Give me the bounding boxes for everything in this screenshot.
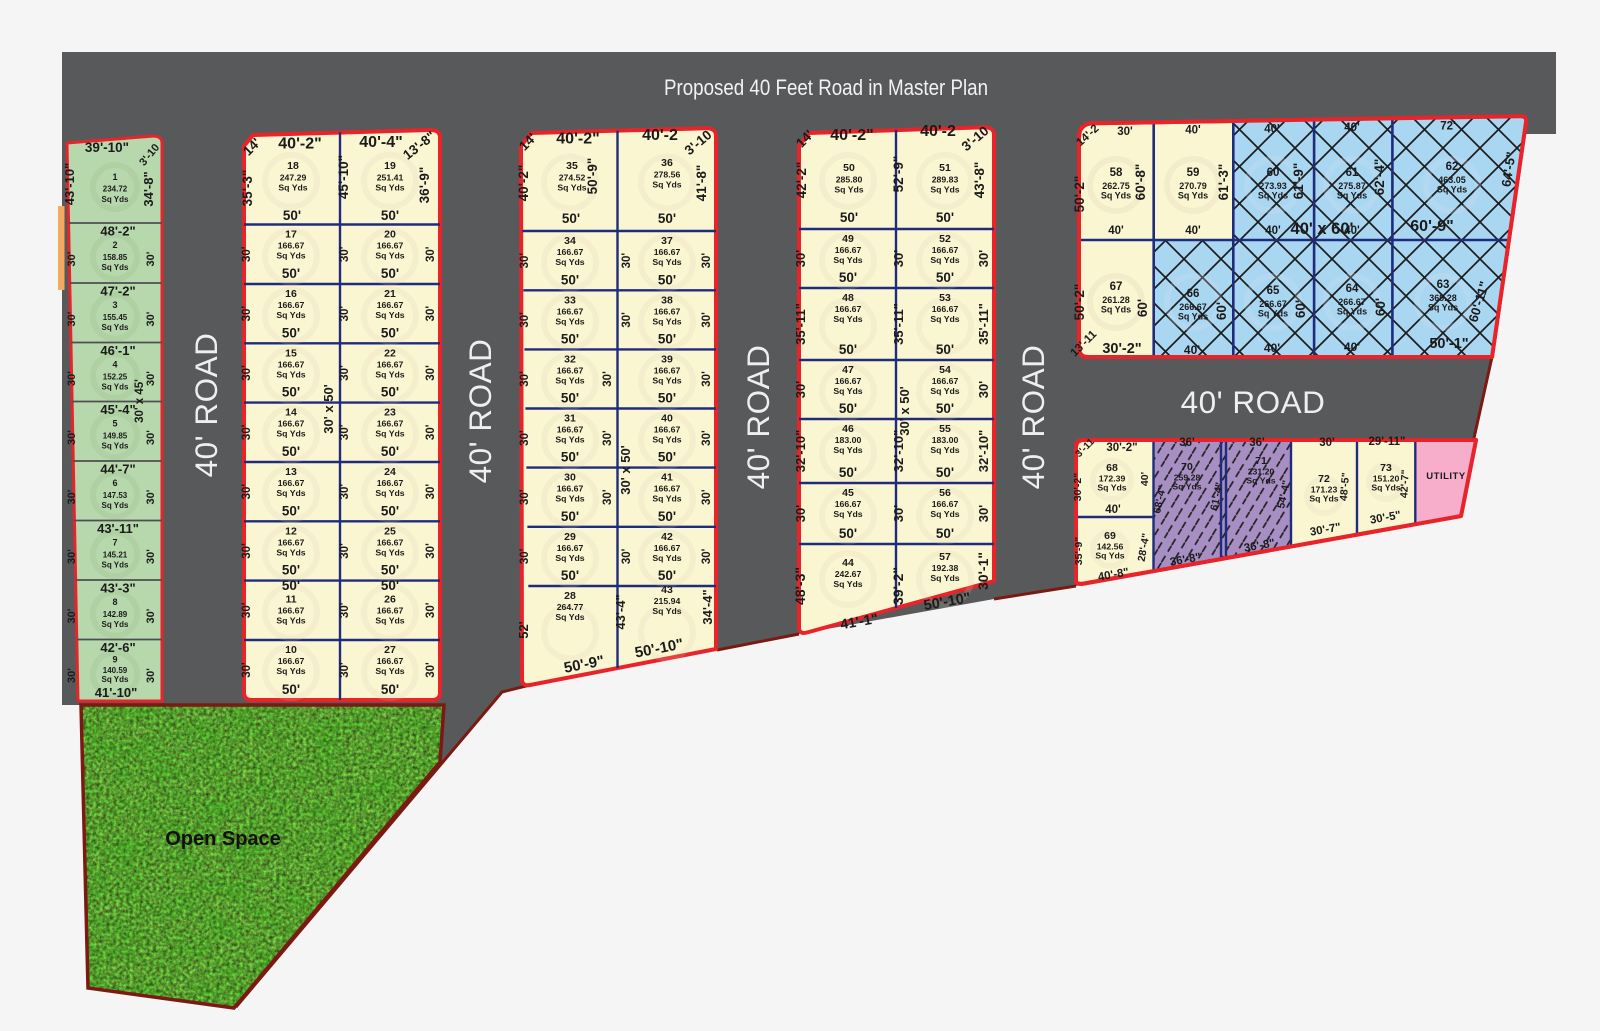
svg-text:32'-10": 32'-10" bbox=[793, 430, 808, 473]
svg-text:Open Space: Open Space bbox=[165, 828, 281, 850]
svg-text:Sq Yds: Sq Yds bbox=[652, 316, 681, 326]
svg-text:32: 32 bbox=[564, 353, 576, 365]
svg-text:40': 40' bbox=[1108, 225, 1124, 237]
svg-text:Sq Yds: Sq Yds bbox=[375, 429, 404, 439]
svg-text:30': 30' bbox=[241, 306, 253, 322]
svg-text:Sq Yds: Sq Yds bbox=[652, 375, 681, 385]
svg-text:30': 30' bbox=[701, 253, 713, 269]
svg-text:30': 30' bbox=[425, 365, 437, 381]
svg-text:40': 40' bbox=[1344, 122, 1360, 134]
svg-text:Sq Yds: Sq Yds bbox=[1428, 303, 1458, 313]
svg-text:166.67: 166.67 bbox=[278, 606, 305, 616]
svg-text:50': 50' bbox=[839, 342, 857, 357]
svg-text:166.67: 166.67 bbox=[654, 543, 681, 553]
svg-text:50': 50' bbox=[561, 331, 579, 346]
svg-text:Sq Yds: Sq Yds bbox=[276, 310, 305, 320]
svg-text:41: 41 bbox=[661, 472, 673, 484]
svg-text:40'-2": 40'-2" bbox=[830, 127, 873, 144]
svg-text:30': 30' bbox=[425, 662, 437, 678]
svg-text:Sq Yds: Sq Yds bbox=[930, 386, 959, 396]
svg-text:50': 50' bbox=[561, 509, 579, 524]
svg-text:30: 30 bbox=[564, 472, 576, 484]
svg-text:30': 30' bbox=[621, 312, 633, 328]
svg-text:50': 50' bbox=[381, 385, 399, 400]
svg-text:50': 50' bbox=[840, 210, 858, 225]
svg-text:166.67: 166.67 bbox=[932, 499, 959, 509]
svg-text:166.67: 166.67 bbox=[278, 300, 305, 310]
svg-text:30': 30' bbox=[602, 430, 614, 446]
svg-text:70: 70 bbox=[1181, 461, 1193, 473]
svg-text:40'-2": 40'-2" bbox=[556, 131, 599, 148]
svg-text:30': 30' bbox=[891, 250, 906, 268]
svg-text:1: 1 bbox=[112, 172, 117, 182]
svg-text:42'-2": 42'-2" bbox=[794, 162, 809, 199]
svg-text:Sq Yds: Sq Yds bbox=[930, 509, 959, 519]
svg-text:Sq Yds: Sq Yds bbox=[276, 616, 305, 626]
svg-text:152.25: 152.25 bbox=[103, 373, 128, 382]
svg-text:46: 46 bbox=[842, 423, 854, 435]
svg-text:20: 20 bbox=[384, 229, 396, 241]
svg-text:166.67: 166.67 bbox=[377, 656, 404, 666]
svg-text:Sq Yds: Sq Yds bbox=[930, 314, 959, 324]
svg-text:50': 50' bbox=[282, 578, 300, 593]
svg-text:3: 3 bbox=[112, 300, 117, 310]
svg-text:72: 72 bbox=[1318, 473, 1330, 485]
svg-text:30': 30' bbox=[793, 505, 808, 523]
svg-text:37: 37 bbox=[661, 235, 673, 247]
svg-text:19: 19 bbox=[384, 160, 396, 172]
svg-text:Sq Yds: Sq Yds bbox=[1097, 483, 1126, 493]
svg-text:166.67: 166.67 bbox=[278, 656, 305, 666]
svg-text:14: 14 bbox=[285, 407, 297, 419]
svg-text:140.59: 140.59 bbox=[103, 666, 128, 675]
svg-text:30': 30' bbox=[976, 505, 991, 523]
svg-text:Sq Yds: Sq Yds bbox=[930, 573, 959, 583]
svg-text:50': 50' bbox=[839, 270, 857, 285]
svg-text:Sq Yds: Sq Yds bbox=[1258, 309, 1288, 319]
svg-text:44'-7": 44'-7" bbox=[100, 462, 135, 477]
svg-text:40': 40' bbox=[1264, 341, 1280, 355]
svg-text:Sq Yds: Sq Yds bbox=[1172, 482, 1201, 492]
svg-text:Sq Yds: Sq Yds bbox=[102, 442, 130, 451]
svg-text:266.67: 266.67 bbox=[1179, 302, 1207, 312]
svg-text:30': 30' bbox=[339, 602, 351, 618]
svg-text:30': 30' bbox=[701, 371, 713, 387]
svg-text:28: 28 bbox=[564, 590, 576, 602]
svg-text:30': 30' bbox=[145, 371, 157, 386]
svg-text:42'-6": 42'-6" bbox=[100, 640, 135, 655]
svg-text:166.67: 166.67 bbox=[557, 425, 584, 435]
svg-text:Sq Yds: Sq Yds bbox=[557, 183, 586, 193]
svg-text:289.83: 289.83 bbox=[932, 175, 959, 185]
svg-text:8: 8 bbox=[112, 597, 117, 607]
svg-text:41'-8": 41'-8" bbox=[694, 165, 709, 202]
svg-text:30': 30' bbox=[339, 365, 351, 381]
svg-text:42'-7": 42'-7" bbox=[1398, 469, 1411, 498]
svg-text:166.67: 166.67 bbox=[278, 537, 305, 547]
svg-text:30': 30' bbox=[145, 430, 157, 445]
svg-text:50': 50' bbox=[381, 682, 399, 697]
svg-text:60': 60' bbox=[1214, 302, 1229, 320]
svg-text:30': 30' bbox=[241, 602, 253, 618]
svg-text:30': 30' bbox=[339, 484, 351, 500]
svg-text:43'-11": 43'-11" bbox=[97, 521, 139, 536]
svg-text:50': 50' bbox=[936, 270, 954, 285]
svg-text:30' x 50': 30' x 50' bbox=[321, 384, 336, 434]
svg-text:43: 43 bbox=[661, 584, 673, 596]
svg-text:Sq Yds: Sq Yds bbox=[833, 509, 862, 519]
svg-text:Sq Yds: Sq Yds bbox=[276, 251, 305, 261]
svg-text:Sq Yds: Sq Yds bbox=[102, 383, 130, 392]
svg-text:40' ROAD: 40' ROAD bbox=[740, 345, 776, 490]
svg-text:Sq Yds: Sq Yds bbox=[102, 263, 130, 272]
svg-text:40' ROAD: 40' ROAD bbox=[1181, 384, 1326, 420]
svg-text:40': 40' bbox=[1265, 225, 1281, 237]
svg-text:166.67: 166.67 bbox=[377, 419, 404, 429]
svg-text:13: 13 bbox=[285, 466, 297, 478]
svg-text:52': 52' bbox=[516, 621, 531, 639]
svg-text:50': 50' bbox=[562, 211, 580, 226]
svg-text:30': 30' bbox=[701, 430, 713, 446]
svg-text:145.21: 145.21 bbox=[103, 551, 128, 560]
svg-text:Sq Yds: Sq Yds bbox=[555, 612, 584, 622]
svg-text:43'-8": 43'-8" bbox=[972, 162, 987, 199]
svg-text:50': 50' bbox=[936, 465, 954, 480]
svg-text:166.67: 166.67 bbox=[377, 359, 404, 369]
svg-text:Sq Yds: Sq Yds bbox=[930, 255, 959, 265]
svg-text:30': 30' bbox=[701, 548, 713, 564]
svg-text:166.67: 166.67 bbox=[654, 365, 681, 375]
svg-text:7: 7 bbox=[112, 538, 117, 548]
svg-text:Sq Yds: Sq Yds bbox=[278, 183, 307, 193]
svg-text:30': 30' bbox=[241, 543, 253, 559]
svg-text:45'-4": 45'-4" bbox=[100, 402, 135, 417]
svg-text:50': 50' bbox=[381, 208, 399, 223]
svg-text:30': 30' bbox=[66, 311, 78, 326]
svg-text:Sq Yds: Sq Yds bbox=[1101, 191, 1131, 201]
svg-text:50': 50' bbox=[561, 272, 579, 287]
svg-text:27: 27 bbox=[384, 644, 396, 656]
svg-text:50': 50' bbox=[282, 325, 300, 340]
svg-text:50': 50' bbox=[936, 342, 954, 357]
svg-text:Sq Yds: Sq Yds bbox=[1101, 305, 1131, 315]
svg-text:30': 30' bbox=[519, 371, 531, 387]
svg-text:64: 64 bbox=[1346, 283, 1359, 295]
svg-text:Sq Yds: Sq Yds bbox=[834, 185, 863, 195]
svg-text:192.38: 192.38 bbox=[932, 563, 959, 573]
svg-text:43'-4": 43'-4" bbox=[613, 594, 628, 629]
svg-text:Sq Yds: Sq Yds bbox=[1337, 191, 1367, 201]
svg-text:Sq Yds: Sq Yds bbox=[276, 547, 305, 557]
svg-text:50': 50' bbox=[839, 526, 857, 541]
svg-text:73: 73 bbox=[1380, 462, 1392, 474]
svg-text:66: 66 bbox=[1187, 288, 1200, 300]
svg-text:Sq Yds: Sq Yds bbox=[276, 369, 305, 379]
svg-text:30': 30' bbox=[241, 365, 253, 381]
svg-text:30': 30' bbox=[425, 543, 437, 559]
svg-text:35'-11": 35'-11" bbox=[976, 303, 991, 345]
svg-text:67: 67 bbox=[1110, 281, 1123, 293]
svg-text:Sq Yds: Sq Yds bbox=[555, 553, 584, 563]
svg-text:30' x 50': 30' x 50' bbox=[618, 445, 633, 495]
svg-text:59: 59 bbox=[1187, 167, 1200, 179]
svg-text:40' x 60': 40' x 60' bbox=[1291, 220, 1354, 238]
svg-text:50': 50' bbox=[282, 563, 300, 578]
svg-text:50'-1": 50'-1" bbox=[1429, 336, 1468, 352]
svg-text:Sq Yds: Sq Yds bbox=[833, 445, 862, 455]
svg-text:40: 40 bbox=[661, 413, 673, 425]
svg-text:166.67: 166.67 bbox=[835, 376, 862, 386]
svg-text:166.67: 166.67 bbox=[932, 245, 959, 255]
svg-text:30': 30' bbox=[519, 253, 531, 269]
svg-text:463.05: 463.05 bbox=[1438, 175, 1466, 185]
svg-text:30': 30' bbox=[339, 246, 351, 262]
svg-text:30': 30' bbox=[519, 430, 531, 446]
svg-text:262.75: 262.75 bbox=[1102, 181, 1130, 191]
svg-text:10: 10 bbox=[285, 644, 297, 656]
svg-text:34'-8": 34'-8" bbox=[141, 171, 156, 206]
svg-text:30': 30' bbox=[145, 311, 157, 326]
svg-text:166.67: 166.67 bbox=[278, 359, 305, 369]
svg-text:40': 40' bbox=[1264, 123, 1280, 135]
svg-text:Sq Yds: Sq Yds bbox=[375, 310, 404, 320]
svg-text:40' ROAD: 40' ROAD bbox=[1015, 345, 1051, 490]
svg-text:Sq Yds: Sq Yds bbox=[375, 616, 404, 626]
svg-text:68: 68 bbox=[1106, 462, 1118, 474]
svg-text:50': 50' bbox=[381, 578, 399, 593]
svg-text:30': 30' bbox=[621, 548, 633, 564]
svg-text:215.94: 215.94 bbox=[654, 596, 681, 606]
svg-text:30' x 45': 30' x 45' bbox=[134, 379, 146, 423]
svg-text:35'-11": 35'-11" bbox=[793, 303, 808, 345]
svg-text:Sq Yds: Sq Yds bbox=[555, 375, 584, 385]
svg-text:26: 26 bbox=[384, 594, 396, 606]
svg-text:52'-9": 52'-9" bbox=[891, 156, 906, 193]
svg-text:242.67: 242.67 bbox=[835, 569, 862, 579]
svg-text:278.56: 278.56 bbox=[654, 170, 681, 180]
svg-text:47: 47 bbox=[842, 364, 854, 376]
svg-text:72': 72' bbox=[1440, 120, 1456, 132]
svg-text:65: 65 bbox=[1267, 285, 1280, 297]
svg-text:30': 30' bbox=[425, 484, 437, 500]
svg-text:30'-2": 30'-2" bbox=[1072, 473, 1084, 502]
svg-text:15: 15 bbox=[285, 347, 297, 359]
svg-text:60: 60 bbox=[1267, 167, 1280, 179]
svg-text:30': 30' bbox=[621, 253, 633, 269]
svg-text:30': 30' bbox=[519, 312, 531, 328]
svg-text:166.67: 166.67 bbox=[654, 306, 681, 316]
svg-text:34: 34 bbox=[564, 235, 576, 247]
svg-text:50': 50' bbox=[658, 331, 676, 346]
svg-text:48'-5": 48'-5" bbox=[1338, 472, 1352, 501]
svg-text:50': 50' bbox=[561, 391, 579, 406]
svg-text:60': 60' bbox=[1373, 298, 1388, 316]
svg-text:266.67: 266.67 bbox=[1259, 299, 1287, 309]
svg-text:55: 55 bbox=[939, 423, 951, 435]
svg-text:Sq Yds: Sq Yds bbox=[102, 195, 130, 204]
svg-text:30': 30' bbox=[1117, 126, 1133, 138]
svg-text:50': 50' bbox=[658, 509, 676, 524]
svg-text:16: 16 bbox=[285, 288, 297, 300]
svg-text:Sq Yds: Sq Yds bbox=[102, 561, 130, 570]
svg-text:46'-1": 46'-1" bbox=[100, 343, 135, 358]
svg-text:40'-2": 40'-2" bbox=[516, 165, 531, 202]
svg-text:2: 2 bbox=[112, 240, 117, 250]
svg-text:22: 22 bbox=[384, 347, 396, 359]
svg-text:30': 30' bbox=[701, 312, 713, 328]
svg-text:57: 57 bbox=[939, 551, 951, 563]
svg-text:Sq Yds: Sq Yds bbox=[833, 255, 862, 265]
svg-text:52: 52 bbox=[939, 233, 951, 245]
svg-text:60': 60' bbox=[1293, 300, 1308, 318]
svg-text:40': 40' bbox=[1139, 472, 1151, 486]
svg-text:50': 50' bbox=[936, 526, 954, 541]
svg-text:30': 30' bbox=[425, 424, 437, 440]
svg-text:35'-3": 35'-3" bbox=[240, 170, 255, 207]
svg-text:274.52: 274.52 bbox=[559, 173, 586, 183]
svg-text:50'-2": 50'-2" bbox=[1072, 176, 1087, 213]
svg-text:5: 5 bbox=[112, 419, 117, 429]
svg-text:UTILITY: UTILITY bbox=[1426, 471, 1466, 482]
svg-text:166.67: 166.67 bbox=[932, 376, 959, 386]
svg-text:50': 50' bbox=[658, 391, 676, 406]
svg-text:30': 30' bbox=[241, 246, 253, 262]
svg-text:50': 50' bbox=[658, 450, 676, 465]
svg-text:Sq Yds: Sq Yds bbox=[102, 323, 130, 332]
svg-text:30': 30' bbox=[145, 668, 157, 683]
svg-text:Sq Yds: Sq Yds bbox=[375, 183, 404, 193]
svg-text:285.80: 285.80 bbox=[836, 175, 863, 185]
svg-text:40'-2": 40'-2" bbox=[278, 136, 321, 153]
svg-text:Sq Yds: Sq Yds bbox=[276, 488, 305, 498]
svg-text:30': 30' bbox=[793, 250, 808, 268]
svg-text:166.67: 166.67 bbox=[278, 478, 305, 488]
svg-text:Sq Yds: Sq Yds bbox=[930, 185, 959, 195]
svg-text:247.29: 247.29 bbox=[280, 173, 307, 183]
svg-text:40'-2: 40'-2 bbox=[642, 127, 678, 144]
svg-text:Sq Yds: Sq Yds bbox=[833, 579, 862, 589]
svg-text:40'-2: 40'-2 bbox=[920, 123, 956, 140]
svg-text:38: 38 bbox=[661, 294, 673, 306]
svg-text:50': 50' bbox=[839, 401, 857, 416]
svg-text:61'-9": 61'-9" bbox=[1291, 163, 1306, 200]
svg-text:24: 24 bbox=[384, 466, 396, 478]
svg-text:Sq Yds: Sq Yds bbox=[1178, 312, 1208, 322]
svg-text:54: 54 bbox=[939, 364, 951, 376]
svg-text:40': 40' bbox=[1344, 340, 1360, 354]
svg-text:Sq Yds: Sq Yds bbox=[102, 675, 130, 684]
svg-text:261.28: 261.28 bbox=[1102, 295, 1130, 305]
svg-text:30': 30' bbox=[66, 549, 78, 564]
svg-text:30'-2": 30'-2" bbox=[1102, 341, 1141, 357]
svg-text:264.77: 264.77 bbox=[557, 602, 584, 612]
svg-text:36'-9": 36'-9" bbox=[417, 167, 432, 204]
svg-text:50': 50' bbox=[282, 266, 300, 281]
svg-text:30' x 50': 30' x 50' bbox=[897, 386, 912, 436]
svg-text:275.87: 275.87 bbox=[1338, 181, 1366, 191]
svg-text:45'-10": 45'-10" bbox=[336, 155, 351, 199]
svg-text:183.00: 183.00 bbox=[932, 435, 959, 445]
svg-text:9: 9 bbox=[112, 655, 117, 665]
svg-text:50': 50' bbox=[658, 272, 676, 287]
svg-text:48: 48 bbox=[842, 292, 854, 304]
svg-text:158.85: 158.85 bbox=[103, 253, 128, 262]
svg-text:50': 50' bbox=[561, 568, 579, 583]
svg-text:166.67: 166.67 bbox=[557, 365, 584, 375]
svg-text:Sq Yds: Sq Yds bbox=[1371, 483, 1400, 493]
svg-text:53: 53 bbox=[939, 292, 951, 304]
svg-text:50': 50' bbox=[658, 211, 676, 226]
svg-text:50': 50' bbox=[381, 266, 399, 281]
svg-text:Sq Yds: Sq Yds bbox=[1309, 494, 1338, 504]
svg-text:30': 30' bbox=[339, 306, 351, 322]
svg-text:50': 50' bbox=[936, 401, 954, 416]
svg-text:50': 50' bbox=[658, 568, 676, 583]
svg-text:166.67: 166.67 bbox=[557, 247, 584, 257]
svg-text:166.67: 166.67 bbox=[557, 306, 584, 316]
svg-text:30': 30' bbox=[339, 543, 351, 559]
svg-text:30': 30' bbox=[602, 371, 614, 387]
svg-text:43'-10": 43'-10" bbox=[62, 163, 77, 206]
svg-text:50': 50' bbox=[936, 210, 954, 225]
svg-text:40': 40' bbox=[1184, 343, 1200, 357]
svg-text:Sq Yds: Sq Yds bbox=[1246, 476, 1275, 486]
svg-text:36: 36 bbox=[661, 157, 673, 169]
svg-text:30': 30' bbox=[145, 549, 157, 564]
svg-text:18: 18 bbox=[287, 160, 299, 172]
svg-text:30': 30' bbox=[66, 251, 78, 266]
svg-text:30'-1": 30'-1" bbox=[975, 552, 991, 590]
svg-text:369.28: 369.28 bbox=[1429, 293, 1457, 303]
svg-text:166.67: 166.67 bbox=[278, 419, 305, 429]
svg-text:Sq Yds: Sq Yds bbox=[652, 435, 681, 445]
svg-text:Sq Yds: Sq Yds bbox=[652, 606, 681, 616]
svg-text:50'-9": 50'-9" bbox=[585, 158, 600, 195]
svg-text:30': 30' bbox=[701, 489, 713, 505]
svg-text:61'-3": 61'-3" bbox=[1216, 164, 1231, 201]
svg-text:50': 50' bbox=[381, 444, 399, 459]
svg-text:44: 44 bbox=[842, 557, 854, 569]
svg-text:270.79: 270.79 bbox=[1179, 181, 1207, 191]
svg-text:29: 29 bbox=[564, 531, 576, 543]
svg-text:35'-11": 35'-11" bbox=[891, 303, 906, 345]
svg-text:166.67: 166.67 bbox=[557, 484, 584, 494]
svg-text:30': 30' bbox=[1319, 437, 1335, 449]
svg-text:30': 30' bbox=[241, 484, 253, 500]
svg-text:33: 33 bbox=[564, 294, 576, 306]
svg-text:Sq Yds: Sq Yds bbox=[555, 494, 584, 504]
svg-text:47'-2": 47'-2" bbox=[100, 284, 135, 299]
svg-text:30': 30' bbox=[891, 505, 906, 523]
svg-text:12: 12 bbox=[285, 525, 297, 537]
svg-text:30': 30' bbox=[602, 489, 614, 505]
svg-text:71: 71 bbox=[1255, 455, 1267, 467]
svg-text:30'-2": 30'-2" bbox=[1106, 442, 1137, 454]
svg-text:60'-9": 60'-9" bbox=[1410, 218, 1453, 235]
svg-text:35: 35 bbox=[566, 160, 578, 172]
svg-text:40'-4": 40'-4" bbox=[359, 134, 402, 151]
svg-text:40': 40' bbox=[1185, 125, 1201, 137]
svg-text:30': 30' bbox=[519, 489, 531, 505]
svg-text:41'-10": 41'-10" bbox=[95, 685, 138, 700]
svg-text:61: 61 bbox=[1346, 167, 1359, 179]
svg-text:166.67: 166.67 bbox=[835, 499, 862, 509]
svg-text:30': 30' bbox=[145, 608, 157, 623]
svg-text:50': 50' bbox=[282, 682, 300, 697]
svg-text:58: 58 bbox=[1110, 167, 1123, 179]
svg-text:30': 30' bbox=[976, 250, 991, 268]
svg-text:Sq Yds: Sq Yds bbox=[375, 488, 404, 498]
